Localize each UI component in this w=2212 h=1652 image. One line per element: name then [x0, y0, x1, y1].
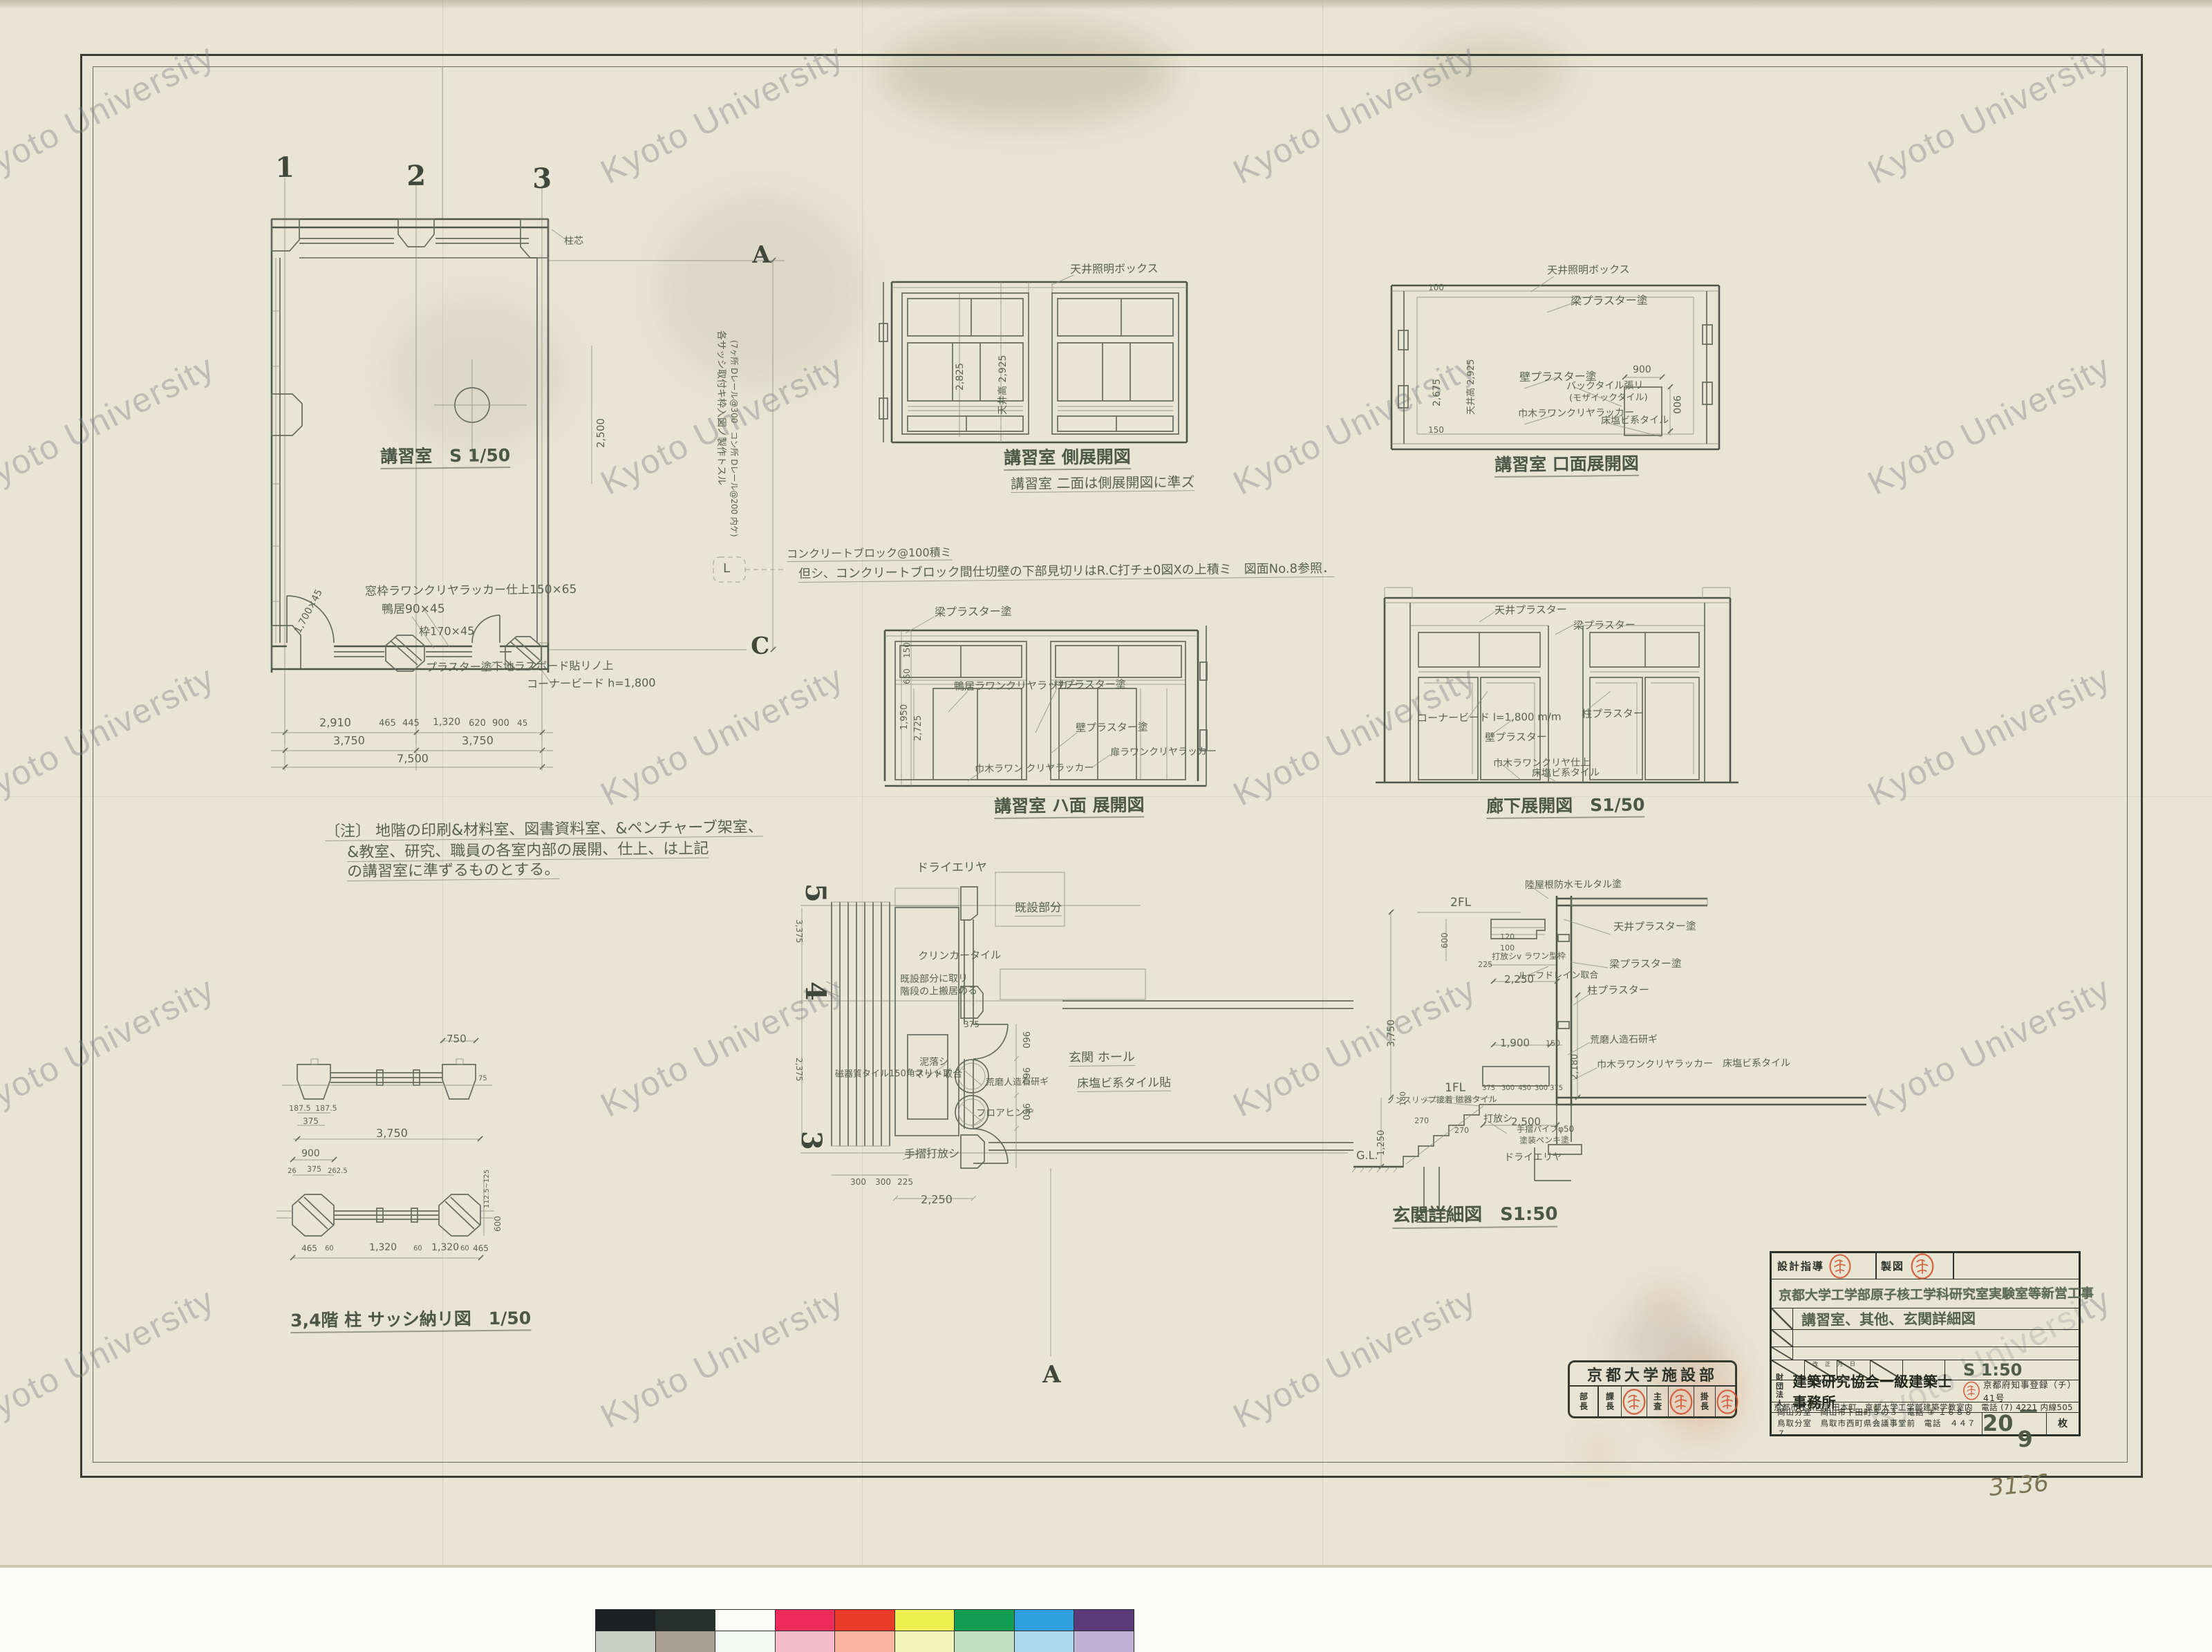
color-patch: [715, 1631, 775, 1652]
dimension-text: 300: [1501, 1085, 1515, 1093]
dimension-text: 600: [1441, 932, 1450, 948]
color-patch: [1015, 1610, 1074, 1631]
drawing-annotation: バックタイル張リ: [1566, 381, 1644, 392]
dimension-text: 45: [517, 719, 527, 728]
dimension-text: 2,250: [1504, 975, 1534, 986]
color-patch: [895, 1610, 955, 1631]
drawing-annotation: コーナービード l=1,800 m/m: [1417, 712, 1562, 724]
dimension-text: 60: [460, 1246, 469, 1253]
red-seal-stamp: [1962, 1380, 1980, 1401]
red-seal-stamp: [1828, 1253, 1852, 1279]
drawing-annotation: 打放シv ラワン型枠: [1492, 952, 1566, 961]
dimension-text: 650: [903, 668, 912, 684]
drawing-annotation: 1FL: [1445, 1082, 1465, 1095]
drawing-annotation: ドライエリヤ: [917, 862, 987, 875]
drafting-label: 製図: [1875, 1259, 1904, 1273]
dimension-text: 270: [1414, 1117, 1429, 1125]
drawing-annotation: L: [723, 563, 730, 576]
drawing-annotation: 磁器質タイル150角スリップ: [835, 1069, 951, 1079]
drawing-annotation: 荒磨人造石研ギ: [1590, 1035, 1658, 1046]
drawing-annotation: 講習室 二面は側展開図に準ズ: [1011, 475, 1195, 493]
color-patch: [596, 1631, 655, 1652]
dimension-text: 150: [1428, 426, 1444, 435]
grid-label: 4: [800, 982, 829, 1001]
dimension-text: 2,500: [596, 418, 607, 448]
dimension-text: 2,910: [319, 717, 351, 729]
color-patch: [955, 1610, 1014, 1631]
sheet-number: 20: [1983, 1410, 2014, 1436]
color-patch: [1074, 1631, 1134, 1652]
dimension-text: 150: [903, 642, 912, 658]
drawing-annotation: 床塩ビ系タイル貼: [1077, 1078, 1171, 1092]
dimension-text: 375: [303, 1117, 319, 1126]
dimension-text: 300: [875, 1178, 891, 1187]
dimension-text: 2,250: [921, 1194, 953, 1206]
dimension-text: 900: [1671, 395, 1681, 414]
dimension-text: 1,900: [1500, 1038, 1530, 1049]
side-elevation-view: [879, 275, 1187, 442]
project-title: 京都大学工学部原子核工学科研究室実験室等新営工事: [1772, 1283, 2094, 1304]
facilities-dept-title: 京都大学施設部: [1570, 1362, 1735, 1385]
drawing-annotation: (7ヶ所 Dレール@300 コン所 Dレール@200 内ケ): [729, 340, 738, 537]
drawing-annotation: 打放シ: [1483, 1114, 1512, 1125]
drawing-annotation: 柱プラスター塗: [1053, 679, 1126, 691]
dimension-text: 960: [1020, 1031, 1030, 1049]
dimension-text: 225: [897, 1178, 913, 1187]
approval-role-label: 掛長: [1694, 1387, 1716, 1416]
drawing-annotation: 扉ラワンクリヤラッカー: [1110, 747, 1217, 758]
dimension-text: 900: [301, 1149, 320, 1159]
dimension-text: 450: [1518, 1085, 1531, 1093]
design-supervision-label: 設計指導: [1772, 1259, 1824, 1273]
drawing-annotation: 床塩ビ系タイル: [1601, 415, 1669, 426]
cell-divider: [1953, 1253, 1954, 1279]
drawing-annotation: 天井プラスター: [1494, 605, 1567, 617]
dimension-text: 465: [301, 1244, 317, 1253]
title-block: 設計指導 製図 京都大学工学部原子核工学科研究室実験室等新営工事 講習室、其他、…: [1770, 1251, 2081, 1436]
drawing-annotation: 玄関 ホール: [1069, 1051, 1135, 1067]
drawing-title: 講習室、其他、玄関詳細図: [1793, 1308, 1976, 1330]
dimension-text: 120: [1500, 933, 1515, 941]
dimension-text: 2,675: [1432, 379, 1443, 406]
dimension-text: 375: [1550, 1085, 1563, 1093]
dimension-text: 1,950: [900, 704, 910, 730]
drawing-annotation: 床塩ビ系タイル: [1532, 768, 1600, 779]
dimension-text: 天井高 2,925: [1467, 359, 1477, 415]
dimension-text: 150: [1546, 1040, 1560, 1048]
dimension-text: 3,750: [462, 735, 494, 747]
grid-label: 3: [796, 1131, 825, 1150]
grid-label: 1: [275, 153, 294, 182]
revision-slash-cell: [1772, 1330, 1793, 1346]
dimension-text: 1,320: [369, 1243, 397, 1253]
view-caption: 3,4階 柱 サッシ納リ図 1/50: [290, 1309, 531, 1333]
view-caption: 講習室 ハ面 展開図: [994, 796, 1145, 820]
scale-cell: S 1:50: [1945, 1360, 2079, 1380]
drawing-annotation: 巾木ラワンクリヤラッカー 床塩ビ系タイル: [1597, 1058, 1790, 1071]
drawing-annotation: 泥落シ: [919, 1058, 948, 1068]
color-patch: [1015, 1631, 1074, 1652]
color-patch: [656, 1631, 715, 1652]
scanner-background: TRUSCO 345678910123456789201234567893012…: [0, 1568, 2212, 1652]
dimension-text: 750: [447, 1034, 467, 1045]
archive-number: 3136: [1988, 1471, 2050, 1501]
grid-label: 3: [532, 165, 552, 194]
drawing-annotation: コンクリートブロック@100積ミ: [787, 547, 952, 562]
red-seal-stamp: [1716, 1387, 1739, 1416]
drawing-annotation: 鴨居90×45: [382, 603, 445, 617]
drawing-annotation: クリンカータイル: [918, 950, 1001, 962]
color-patch: [835, 1631, 894, 1652]
dimension-text: 900: [1633, 365, 1651, 375]
dimension-text: 60: [325, 1246, 334, 1253]
scanned-drawing-page: Kyoto UniversityKyoto UniversityKyoto Un…: [0, 0, 2212, 1652]
drawing-annotation: 窓枠ラワンクリヤラッカー仕上150×65: [365, 584, 577, 599]
dimension-text: 1,320: [433, 717, 460, 728]
drawing-annotation: 荒磨人造石研ギ: [986, 1078, 1049, 1088]
dimension-text: 26: [288, 1168, 297, 1176]
drawing-annotation: 天井プラスター塗: [1613, 921, 1696, 933]
drawing-annotation: 手摺打放シ: [904, 1148, 959, 1161]
drawing-annotation: 枠170×45: [419, 626, 474, 638]
color-patch: [835, 1610, 894, 1631]
color-patch: [955, 1631, 1014, 1652]
color-patch: [1074, 1610, 1134, 1631]
dimension-text: 3,750: [333, 735, 365, 747]
dimension-text: 3,375: [794, 919, 803, 943]
facilities-dept-stamp: 京都大学施設部 部長 課長 主査 掛長: [1568, 1360, 1737, 1418]
approval-role-label: 課長: [1599, 1387, 1622, 1416]
approval-cells: 部長 課長 主査 掛長: [1570, 1385, 1735, 1416]
entrance-plan-view: [800, 872, 1353, 1356]
drawing-annotation: 梁プラスター塗: [935, 606, 1012, 619]
approval-role-label: 主査: [1647, 1387, 1669, 1416]
sheet-number-suffix: －9: [2018, 1394, 2046, 1452]
drawing-annotation: 壁プラスター: [1485, 732, 1547, 744]
dimension-text: 180: [1399, 1091, 1407, 1106]
view-caption: 廊下展開図 S1/50: [1486, 796, 1645, 820]
dimension-text: 620: [469, 719, 486, 729]
drawing-annotation: 塗装ペンキ塗: [1519, 1136, 1569, 1145]
dimension-text: 75: [478, 1076, 487, 1083]
color-patch: [776, 1631, 835, 1652]
dimension-text: 960: [1020, 1103, 1030, 1120]
corridor-elevation-view: [1376, 588, 1738, 782]
dimension-text: 465: [473, 1244, 489, 1253]
drawing-annotation: 既設部分に取リ: [900, 974, 968, 985]
drawing-annotation: 既設部分: [1015, 902, 1062, 917]
drawing-annotation: 巾木ラワン クリヤラッカー: [975, 763, 1094, 774]
dimension-text: 262.5: [328, 1168, 348, 1176]
drawing-annotation: 柱プラスター: [1582, 708, 1644, 720]
dimension-text: 2,180: [1571, 1054, 1580, 1080]
dimension-text: 100: [1500, 944, 1515, 952]
grid-label: A: [752, 243, 771, 268]
color-patch: [596, 1610, 655, 1631]
drawing-annotation: コーナービード h=1,800: [527, 677, 656, 691]
drawing-annotation: 天井照明ボックス: [1070, 263, 1159, 276]
approval-role-label: 部長: [1570, 1387, 1598, 1416]
dimension-text: 7,500: [397, 753, 429, 765]
dimension-text: 100: [1428, 283, 1444, 292]
dimension-text: 2,825: [955, 363, 966, 391]
dimension-text: 2,725: [914, 715, 924, 741]
dimension-text: 300: [1535, 1085, 1548, 1093]
dimension-text: 1,250: [1377, 1130, 1387, 1156]
dimension-text: 112.5~125: [484, 1170, 491, 1208]
drawing-annotation: 梁プラスター塗: [1571, 295, 1648, 308]
view-caption: 講習室 口面展開図: [1494, 455, 1639, 478]
sheet-number-cell: 20 －9: [1983, 1413, 2047, 1434]
color-patch: [656, 1610, 715, 1631]
dimension-text: 600: [494, 1216, 503, 1232]
dimension-text: 2,375: [794, 1058, 803, 1081]
drawing-annotation: 天井照明ボックス: [1547, 265, 1630, 276]
view-caption: 講習室 側展開図: [1004, 448, 1131, 471]
drawing-annotation: 壁プラスター塗: [1076, 722, 1148, 734]
dimension-text: 300: [850, 1178, 866, 1187]
drawing-annotation: プラスター塗下地ラスボード貼リノ上: [426, 660, 614, 674]
drawing-annotation: 2FL: [1450, 897, 1471, 910]
view-caption: 講習室 S 1/50: [380, 447, 510, 469]
entrance-section-view: [1352, 886, 1866, 1222]
scale-value: S 1:50: [1963, 1360, 2022, 1380]
dimension-text: 270: [1454, 1127, 1469, 1135]
ha-elevation-view: [885, 617, 1207, 786]
dimension-text: 375: [307, 1165, 321, 1174]
drawing-annotation: (モザイックタイル): [1569, 393, 1648, 404]
drawing-annotation: 梁プラスター: [1573, 620, 1635, 632]
grid-label: C: [751, 635, 769, 659]
red-seal-stamp: [1910, 1252, 1935, 1280]
dimension-text: 225: [1478, 961, 1492, 969]
dimension-text: 187.5: [289, 1105, 311, 1113]
dimension-text: 445: [402, 719, 420, 729]
drawing-annotation: ドライエリヤ: [1504, 1152, 1562, 1163]
sheet-unit-label: 枚: [2047, 1416, 2079, 1430]
drawing-annotation: 各サッシ取付キ枠入図ノ製作トスル: [715, 330, 726, 485]
red-seal-stamp: [1669, 1387, 1694, 1416]
drawing-annotation: 陸屋根防水モルタル塗: [1525, 880, 1622, 891]
drawing-annotation: 柱芯: [564, 236, 583, 247]
dimension-text: 60: [413, 1246, 422, 1253]
dimension-text: 3,750: [1387, 1020, 1397, 1047]
dimension-text: 375: [964, 1020, 980, 1029]
branch-offices: 岡山分室 岡山市下田町５の３ 電話 ③ １６８８ 鳥取分室 鳥取市西町県会議事堂…: [1772, 1413, 1983, 1434]
revision-slash-cell: [1772, 1308, 1793, 1329]
drawing-annotation: 階段の上搬居のる: [900, 986, 977, 997]
dimension-text: 3,750: [376, 1128, 408, 1140]
dimension-text: 2,500: [1511, 1117, 1541, 1128]
color-patch: [715, 1610, 775, 1631]
revision-slash-cell: [1772, 1347, 1793, 1360]
dimension-text: 465: [379, 719, 396, 729]
drawing-annotation: 梁プラスター塗: [1609, 959, 1682, 970]
grid-label: 5: [800, 883, 829, 903]
dimension-text: 900: [492, 719, 509, 729]
dimension-text: 375: [1482, 1085, 1495, 1093]
grid-label: A: [1042, 1363, 1061, 1388]
color-patch: [895, 1631, 955, 1652]
dimension-text: 天井高 2,925: [998, 355, 1009, 415]
drawing-annotation: G.L.: [1356, 1150, 1378, 1162]
face-elevation-view: [1391, 276, 1719, 449]
drawing-annotation: 柱プラスター: [1587, 985, 1649, 997]
drawing-annotation: の講習室に準ずるものとする。: [347, 862, 560, 881]
dimension-text: 187.5: [315, 1105, 337, 1113]
cell-divider: [1875, 1253, 1877, 1279]
red-seal-stamp: [1622, 1387, 1647, 1416]
view-caption: 玄関詳細図 S1:50: [1392, 1205, 1558, 1229]
date-header: 改正月日: [1772, 1360, 1903, 1368]
grid-label: 2: [406, 162, 426, 191]
dimension-text: 1,320: [431, 1243, 459, 1253]
dimension-text: 960: [1020, 1067, 1030, 1085]
color-patch: [776, 1610, 835, 1631]
